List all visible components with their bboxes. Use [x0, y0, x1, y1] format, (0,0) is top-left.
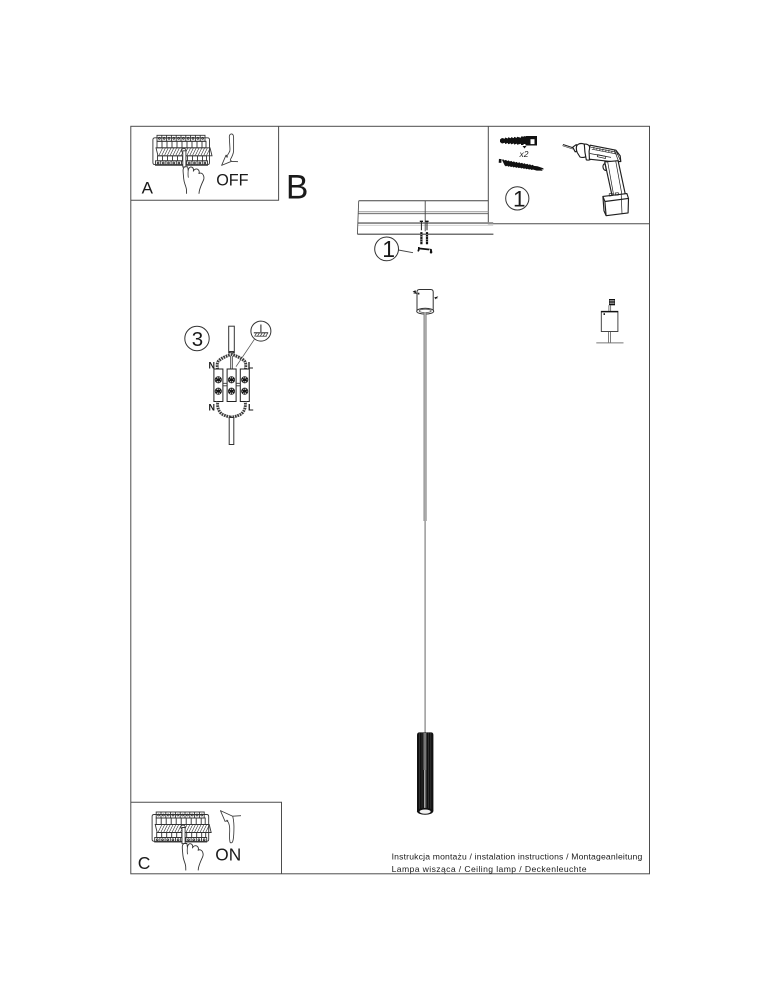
svg-text:OFF: OFF: [216, 172, 248, 190]
svg-text:Instrukcja montażu / instalati: Instrukcja montażu / instalation instruc…: [392, 852, 643, 862]
svg-text:x2: x2: [519, 149, 529, 159]
svg-text:L: L: [248, 403, 254, 413]
svg-text:C: C: [138, 853, 151, 873]
svg-text:1: 1: [382, 236, 395, 262]
svg-text:ON: ON: [215, 845, 241, 865]
svg-text:Lampa wisząca / Ceiling lamp /: Lampa wisząca / Ceiling lamp / Deckenleu…: [392, 864, 587, 874]
svg-text:1: 1: [513, 186, 526, 211]
svg-text:N: N: [209, 403, 216, 413]
svg-text:B: B: [286, 168, 308, 207]
svg-text:3: 3: [192, 328, 203, 351]
svg-text:A: A: [142, 179, 154, 198]
